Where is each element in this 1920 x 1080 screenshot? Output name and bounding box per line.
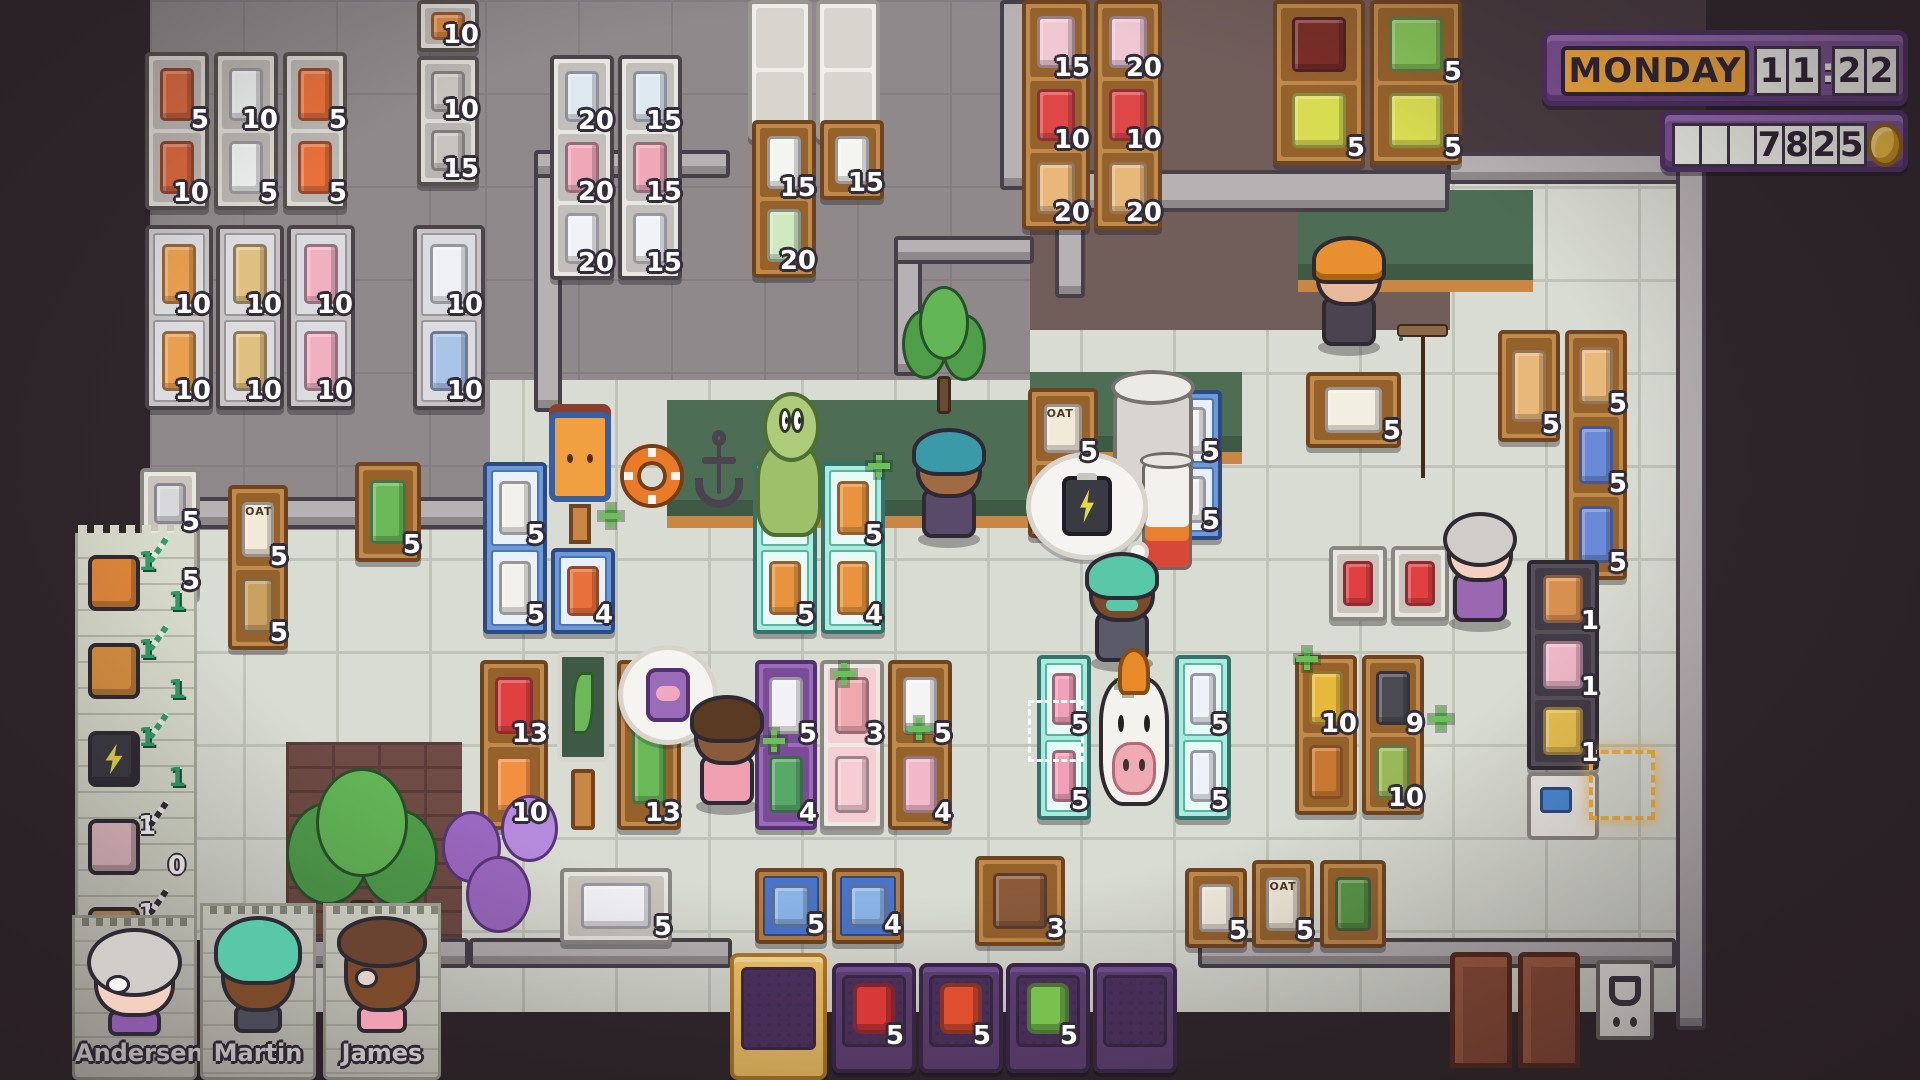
croissant-shelf-b-row: 5 bbox=[829, 470, 877, 546]
coffee-table-row: 3 bbox=[983, 864, 1057, 938]
restock-sparkle-icon bbox=[763, 730, 785, 752]
game-viewport: 5101055510101510101010101010102020201515… bbox=[0, 0, 1920, 1080]
restock-sparkle-icon bbox=[600, 505, 622, 527]
stock-count-badge: 20 bbox=[578, 248, 614, 278]
stock-count-badge: 5 bbox=[799, 719, 817, 749]
shirt-table[interactable]: 5 bbox=[1306, 372, 1401, 448]
stock-count-badge: 5 bbox=[1202, 437, 1220, 467]
bread-shelf-right-row: 5 bbox=[1506, 338, 1552, 434]
display-stand-right-row: 1 bbox=[1535, 700, 1591, 762]
hotbar-slot-4-cabbage[interactable]: 5 bbox=[1006, 963, 1090, 1073]
stock-count-badge: 5 bbox=[182, 566, 200, 596]
white-rack-b[interactable] bbox=[816, 0, 880, 140]
paper-shelf-b[interactable]: 15 bbox=[820, 120, 884, 200]
milk-bottle-stand[interactable]: 5 bbox=[560, 868, 672, 944]
stock-count-badge: 15 bbox=[780, 173, 816, 203]
stock-count-badge: 9 bbox=[1406, 709, 1424, 739]
bottle-shelf[interactable]: 54 bbox=[888, 660, 952, 830]
product-item bbox=[160, 68, 195, 120]
box-shelf-right-row: 5 bbox=[1573, 417, 1619, 492]
washer-column-a[interactable]: 202020 bbox=[550, 55, 614, 280]
stock-count-badge: 4 bbox=[884, 910, 902, 940]
cooler-flowers-row: 10 bbox=[153, 320, 205, 403]
washer-column-b-row: 15 bbox=[626, 63, 674, 130]
stock-count-badge: 20 bbox=[1126, 53, 1162, 83]
chicken-shelf-row: 5 bbox=[491, 470, 539, 546]
stock-count-badge: 5 bbox=[1296, 916, 1314, 946]
milk-fridge[interactable]: 55 bbox=[1175, 655, 1231, 820]
list-progress: 10 bbox=[136, 815, 188, 879]
left-oat-shelf[interactable]: OAT55 bbox=[228, 485, 288, 650]
product-item bbox=[1389, 93, 1444, 148]
freezer-bags[interactable]: 1015 bbox=[417, 56, 479, 186]
stock-count-badge: 5 bbox=[654, 912, 672, 942]
stock-count-badge: 10 bbox=[447, 376, 483, 406]
pantry-shelf-a-row: 10 bbox=[1030, 81, 1082, 150]
stock-count-badge: 5 bbox=[797, 600, 815, 630]
cooler-crackers[interactable]: 1010 bbox=[216, 225, 284, 410]
stock-count-badge: 10 bbox=[1054, 125, 1090, 155]
product-item bbox=[993, 873, 1046, 929]
cooler-narrow-row: 10 bbox=[421, 233, 477, 316]
display-stand-right[interactable]: 111 bbox=[1527, 560, 1599, 770]
restock-sparkle-icon bbox=[1430, 708, 1452, 730]
money-digit: 7 bbox=[1754, 123, 1784, 167]
left-oat-shelf-row: 5 bbox=[236, 570, 280, 643]
stock-count-badge: 5 bbox=[1609, 469, 1627, 499]
oat-crate-row: OAT5 bbox=[1260, 868, 1306, 940]
stock-count-badge: 10 bbox=[447, 290, 483, 320]
washer-column-a-row: 20 bbox=[558, 63, 606, 130]
hotbar-slot-3-cracker-box[interactable]: 5 bbox=[919, 963, 1003, 1073]
product-item: OAT bbox=[1266, 877, 1299, 932]
customer-teal-boy[interactable] bbox=[912, 428, 986, 548]
stock-count-badge: 4 bbox=[934, 798, 952, 828]
stock-count-badge: 10 bbox=[1126, 125, 1162, 155]
lotion-bottle-icon bbox=[88, 819, 140, 875]
lifebuoy-icon[interactable] bbox=[622, 446, 682, 506]
jam-shelf-row bbox=[1303, 737, 1349, 807]
white-rack-b-row bbox=[824, 8, 872, 68]
white-rack-a-row bbox=[756, 8, 804, 68]
martin-request-bubble bbox=[1026, 452, 1148, 560]
time-digit: 2 bbox=[1832, 46, 1867, 96]
product-item bbox=[1309, 745, 1342, 798]
sack-shelf[interactable]: 5 bbox=[1185, 868, 1247, 948]
stock-count-badge: 5 bbox=[270, 542, 288, 572]
deli-counter-b-row: 4 bbox=[840, 876, 896, 936]
cooler-crackers-row: 10 bbox=[224, 233, 276, 316]
restock-sparkle-icon bbox=[908, 718, 930, 740]
cabbage-crate[interactable] bbox=[1320, 860, 1386, 948]
pantry-shelf-b-row: 10 bbox=[1102, 81, 1154, 150]
product-item: OAT bbox=[1044, 404, 1083, 453]
towel-stand[interactable]: 3 bbox=[820, 660, 884, 830]
stock-count-badge: 5 bbox=[934, 719, 952, 749]
stock-count-badge: 5 bbox=[191, 105, 209, 135]
stock-count-badge: 15 bbox=[646, 177, 682, 207]
potted-tree-prop[interactable] bbox=[902, 286, 986, 414]
redbox-shelf-b-row bbox=[1399, 554, 1441, 613]
stock-count-badge: 4 bbox=[595, 600, 613, 630]
stock-count-badge: 10 bbox=[1388, 783, 1424, 813]
stock-count-badge: 5 bbox=[329, 105, 347, 135]
customer-builder[interactable] bbox=[1312, 236, 1386, 356]
money-digit bbox=[1672, 123, 1702, 167]
bottle-shelf-row: 4 bbox=[896, 747, 944, 822]
fish-statue-prop[interactable] bbox=[748, 392, 830, 537]
pads-shelf-row: 4 bbox=[763, 747, 809, 822]
white-rack-a[interactable] bbox=[748, 0, 812, 140]
product-label: OAT bbox=[1047, 407, 1074, 420]
snack-box-icon bbox=[88, 555, 140, 611]
product-item bbox=[1343, 561, 1373, 606]
towel-stand-row bbox=[828, 747, 876, 822]
freezer-bags-row: 15 bbox=[425, 123, 471, 178]
battery-icon bbox=[88, 731, 140, 787]
portrait-hair bbox=[214, 916, 302, 984]
stock-count-badge: 5 bbox=[1071, 786, 1089, 816]
stock-count-badge: 5 bbox=[270, 618, 288, 648]
product-item bbox=[1292, 17, 1347, 72]
freezer-snacks[interactable]: 510 bbox=[145, 52, 209, 210]
item-count-badge: 5 bbox=[973, 1021, 991, 1051]
stock-count-badge: 10 bbox=[242, 105, 278, 135]
product-item bbox=[1292, 93, 1347, 148]
stock-count-badge: 10 bbox=[512, 798, 548, 828]
cooler-narrow[interactable]: 1010 bbox=[413, 225, 485, 410]
stock-count-badge: 3 bbox=[866, 719, 884, 749]
cabbage-crate-row bbox=[1328, 868, 1378, 940]
product-item bbox=[1405, 561, 1435, 606]
coffee-table[interactable]: 3 bbox=[975, 856, 1065, 946]
planter-b[interactable]: 55 bbox=[1370, 0, 1462, 165]
pantry-shelf-b-row: 20 bbox=[1102, 8, 1154, 77]
time-digit: 1 bbox=[1754, 46, 1789, 96]
paper-shelf-a[interactable]: 1520 bbox=[752, 120, 816, 278]
deli-counter-a-row: 5 bbox=[763, 876, 819, 936]
customer-card-andersen[interactable]: Andersen bbox=[72, 915, 197, 1080]
product-item bbox=[1389, 17, 1444, 72]
clock-panel: MONDAY 11:22 bbox=[1542, 30, 1908, 106]
redbox-shelf-a[interactable] bbox=[1329, 546, 1387, 621]
product-item bbox=[581, 883, 650, 929]
stock-count-badge: 10 bbox=[175, 376, 211, 406]
wall-right-outer bbox=[1676, 152, 1706, 1030]
item-count-badge: 5 bbox=[1060, 1021, 1078, 1051]
money-digit: 5 bbox=[1837, 123, 1867, 167]
product-item bbox=[229, 141, 264, 193]
shopping-list-item-battery: 11 bbox=[84, 723, 188, 801]
stock-count-badge: 5 bbox=[1211, 710, 1229, 740]
slot-well bbox=[741, 967, 816, 1050]
cross-shelf[interactable]: 4 bbox=[551, 548, 615, 634]
planter-b-row: 5 bbox=[1378, 85, 1454, 158]
stock-count-badge: 20 bbox=[1126, 198, 1162, 228]
planter-a-row: 5 bbox=[1281, 85, 1357, 158]
product-item bbox=[835, 677, 870, 734]
left-white-fridge-row: 5 bbox=[148, 476, 192, 531]
freezer-snacks-row: 10 bbox=[153, 133, 201, 202]
deli-counter-b[interactable]: 4 bbox=[832, 868, 904, 944]
stock-count-badge: 5 bbox=[1444, 133, 1462, 163]
product-item bbox=[769, 677, 802, 734]
product-item bbox=[849, 885, 886, 928]
freezer-orange-row: 5 bbox=[291, 133, 339, 202]
list-progress: 11 bbox=[136, 639, 188, 703]
display-stand-right-row: 1 bbox=[1535, 634, 1591, 696]
pantry-shelf-a-row: 15 bbox=[1030, 8, 1082, 77]
freezer-orange-row: 5 bbox=[291, 60, 339, 129]
stock-count-badge: 5 bbox=[182, 507, 200, 537]
stock-count-badge: 3 bbox=[1047, 914, 1065, 944]
money-digit bbox=[1727, 123, 1757, 167]
freezer-top-corner[interactable]: 10 bbox=[417, 0, 479, 52]
product-icon bbox=[646, 668, 689, 722]
product-item bbox=[1543, 575, 1583, 622]
glasses-icon bbox=[355, 968, 409, 989]
deli-counter-a[interactable]: 5 bbox=[755, 868, 827, 944]
clothes-rack-prop[interactable] bbox=[1395, 318, 1450, 478]
battery-icon bbox=[1062, 476, 1111, 537]
stock-count-badge: 10 bbox=[443, 20, 479, 50]
stock-count-badge: 5 bbox=[1609, 548, 1627, 578]
chicken-shelf[interactable]: 55 bbox=[483, 462, 547, 634]
battery-shelf-row: 9 bbox=[1370, 663, 1416, 733]
product-item bbox=[1325, 387, 1382, 433]
shirt-table-row: 5 bbox=[1314, 380, 1393, 440]
shopping-list-item-snack-box: 11 bbox=[84, 547, 188, 625]
washer-column-a-row: 20 bbox=[558, 134, 606, 201]
stock-count-badge: 10 bbox=[317, 290, 353, 320]
plant-pot-shelf-row: 5 bbox=[363, 470, 413, 554]
money-display: 7825 bbox=[1675, 123, 1867, 167]
customer-card-martin[interactable]: Martin bbox=[200, 903, 316, 1080]
cooler-flowers-row: 10 bbox=[153, 233, 205, 316]
battery-shelf-row: 10 bbox=[1370, 737, 1416, 807]
stock-count-badge: 10 bbox=[246, 290, 282, 320]
stock-count-badge: 5 bbox=[1080, 437, 1098, 467]
time-digit: 2 bbox=[1864, 46, 1899, 96]
stock-count-badge: 10 bbox=[246, 376, 282, 406]
list-progress: 11 bbox=[136, 551, 188, 615]
hotbar-slot-5[interactable] bbox=[1093, 963, 1177, 1073]
washer-column-a-row: 20 bbox=[558, 205, 606, 272]
product-item bbox=[298, 141, 333, 193]
customer-andersen[interactable] bbox=[1443, 512, 1517, 632]
stock-count-badge: 5 bbox=[1609, 389, 1627, 419]
customer-name: James bbox=[326, 1039, 438, 1067]
product-item bbox=[1543, 707, 1583, 754]
slot-well bbox=[1103, 975, 1167, 1046]
product-label: OAT bbox=[1269, 880, 1296, 893]
paper-shelf-a-row: 15 bbox=[760, 128, 808, 197]
redbox-shelf-a-row bbox=[1337, 554, 1379, 613]
hotbar-slot-1[interactable] bbox=[730, 953, 827, 1080]
freezer-snacks-row: 5 bbox=[153, 60, 201, 129]
stock-count-badge: 10 bbox=[1321, 709, 1357, 739]
product-item bbox=[1579, 506, 1612, 563]
stock-count-badge: 15 bbox=[443, 154, 479, 184]
time-display: 11:22 bbox=[1757, 46, 1899, 96]
bread-shelf-right[interactable]: 5 bbox=[1498, 330, 1560, 442]
tomato-shelf-row: 13 bbox=[488, 668, 540, 743]
stock-count-badge: 15 bbox=[646, 248, 682, 278]
customer-name: Andersen bbox=[75, 1039, 194, 1067]
stock-count-badge: 15 bbox=[848, 168, 884, 198]
planter-a-row bbox=[1281, 8, 1357, 81]
stock-count-badge: 5 bbox=[1211, 786, 1229, 816]
stock-count-badge: 5 bbox=[1071, 710, 1089, 740]
money-digit bbox=[1699, 123, 1729, 167]
product-label: OAT bbox=[245, 505, 272, 518]
stock-count-badge: 5 bbox=[527, 600, 545, 630]
hotbar-slot-2-apple[interactable]: 5 bbox=[832, 963, 916, 1073]
stock-count-badge: 15 bbox=[1054, 53, 1090, 83]
freezer-top-corner-row: 10 bbox=[425, 8, 471, 44]
freezer-orange[interactable]: 55 bbox=[283, 52, 347, 210]
stock-count-badge: 4 bbox=[865, 600, 883, 630]
cookie-icon bbox=[88, 643, 140, 699]
product-item bbox=[1543, 641, 1583, 688]
product-item bbox=[1579, 426, 1612, 483]
product-item bbox=[298, 68, 333, 120]
stock-count-badge: 5 bbox=[329, 178, 347, 208]
milk-fridge-row: 5 bbox=[1183, 663, 1223, 736]
washer-column-b-row: 15 bbox=[626, 205, 674, 272]
money-digit: 2 bbox=[1809, 123, 1839, 167]
cooler-flowers[interactable]: 1010 bbox=[145, 225, 213, 410]
stock-count-badge: 5 bbox=[1229, 916, 1247, 946]
box-shelf-right-row: 5 bbox=[1573, 338, 1619, 413]
restock-sparkle-icon bbox=[833, 663, 855, 685]
pantry-shelf-b[interactable]: 201020 bbox=[1094, 0, 1162, 230]
product-item bbox=[835, 756, 870, 813]
stock-count-badge: 15 bbox=[646, 106, 682, 136]
stock-count-badge: 5 bbox=[527, 520, 545, 550]
wall-backroom-bottom bbox=[150, 497, 490, 529]
freezer-dispensers-row: 5 bbox=[222, 133, 270, 202]
stock-count-badge: 13 bbox=[645, 798, 681, 828]
freezer-dispensers-row: 10 bbox=[222, 60, 270, 129]
wall-washer-right-h bbox=[894, 236, 1034, 264]
stock-count-badge: 5 bbox=[260, 178, 278, 208]
washer-column-b[interactable]: 151515 bbox=[618, 55, 682, 280]
planter-b-row: 5 bbox=[1378, 8, 1454, 81]
jam-shelf-row: 10 bbox=[1303, 663, 1349, 733]
pantry-shelf-a[interactable]: 151020 bbox=[1022, 0, 1090, 230]
cooler-pink-row: 10 bbox=[295, 320, 347, 403]
croissant-shelf-b[interactable]: 54 bbox=[821, 462, 885, 634]
plant-pot-shelf[interactable]: 5 bbox=[355, 462, 421, 562]
stock-count-badge: 20 bbox=[780, 246, 816, 276]
product-item bbox=[1512, 350, 1545, 423]
stock-count-badge: 4 bbox=[799, 798, 817, 828]
product-item bbox=[1579, 347, 1612, 404]
stock-count-badge: 10 bbox=[175, 290, 211, 320]
oat-crate[interactable]: OAT5 bbox=[1252, 860, 1314, 948]
croissant-shelf-b-row: 4 bbox=[829, 550, 877, 626]
stock-count-badge: 1 bbox=[1581, 738, 1599, 768]
stock-count-badge: 10 bbox=[443, 95, 479, 125]
shopping-list-item-cookie: 11 bbox=[84, 635, 188, 713]
money-panel: 7825 bbox=[1660, 110, 1908, 172]
stock-count-badge: 13 bbox=[512, 719, 548, 749]
cooler-crackers-row: 10 bbox=[224, 320, 276, 403]
oat-shelf-row: OAT5 bbox=[1036, 396, 1090, 461]
stock-count-badge: 5 bbox=[1202, 506, 1220, 536]
coin-icon bbox=[1867, 123, 1903, 167]
planter-a[interactable]: 5 bbox=[1273, 0, 1365, 165]
pantry-shelf-a-row: 20 bbox=[1030, 153, 1082, 222]
stock-count-badge: 1 bbox=[1581, 672, 1599, 702]
box-shelf-right[interactable]: 555 bbox=[1565, 330, 1627, 580]
day-label: MONDAY bbox=[1561, 46, 1749, 96]
stock-count-badge: 5 bbox=[1542, 410, 1560, 440]
stock-count-badge: 5 bbox=[1347, 133, 1365, 163]
stock-count-badge: 5 bbox=[807, 910, 825, 940]
left-oat-shelf-row: OAT5 bbox=[236, 493, 280, 566]
product-item bbox=[1199, 884, 1232, 933]
restock-sparkle-icon bbox=[868, 455, 890, 477]
stock-count-badge: 20 bbox=[578, 106, 614, 136]
list-progress: 11 bbox=[136, 727, 188, 791]
plant-sign-stand-icon[interactable] bbox=[552, 652, 614, 830]
cooler-narrow-row: 10 bbox=[421, 320, 477, 403]
glasses-icon bbox=[106, 975, 163, 994]
product-item bbox=[1376, 671, 1409, 724]
product-item bbox=[370, 480, 406, 544]
stock-count-badge: 20 bbox=[578, 177, 614, 207]
player[interactable] bbox=[690, 695, 764, 815]
freezer-dispensers[interactable]: 105 bbox=[214, 52, 278, 210]
display-stand-right-row: 1 bbox=[1535, 568, 1591, 630]
cooler-pink[interactable]: 1010 bbox=[287, 225, 355, 410]
exit-doors-prop[interactable] bbox=[1450, 952, 1580, 1068]
basket-sign-icon[interactable] bbox=[1596, 960, 1654, 1040]
cow-mascot-prop[interactable] bbox=[1094, 648, 1174, 828]
pantry-shelf-b-row: 20 bbox=[1102, 153, 1154, 222]
chicken-shelf-row: 5 bbox=[491, 550, 539, 626]
stock-count-badge: 1 bbox=[1581, 606, 1599, 636]
product-item bbox=[903, 756, 938, 813]
sack-shelf-row: 5 bbox=[1193, 876, 1239, 940]
cross-shelf-row: 4 bbox=[559, 556, 607, 626]
stock-count-badge: 5 bbox=[1444, 57, 1462, 87]
money-digit: 8 bbox=[1782, 123, 1812, 167]
stock-count-badge: 10 bbox=[317, 376, 353, 406]
stock-count-badge: 20 bbox=[1054, 198, 1090, 228]
washer-column-b-row: 15 bbox=[626, 134, 674, 201]
freezer-bags-row: 10 bbox=[425, 64, 471, 119]
restock-sparkle-icon bbox=[1296, 648, 1318, 670]
stock-count-badge: 10 bbox=[173, 178, 209, 208]
cooler-pink-row: 10 bbox=[295, 233, 347, 316]
battery-shelf[interactable]: 910 bbox=[1362, 655, 1424, 815]
portrait-hair bbox=[337, 916, 427, 967]
paper-shelf-b-row: 15 bbox=[828, 128, 876, 192]
croissant-shelf-a-row: 5 bbox=[761, 550, 809, 626]
milk-fridge-row: 5 bbox=[1183, 740, 1223, 813]
stock-count-badge: 5 bbox=[865, 520, 883, 550]
customer-card-james[interactable]: James bbox=[323, 903, 441, 1080]
time-digit: 1 bbox=[1786, 46, 1821, 96]
redbox-shelf-b[interactable] bbox=[1391, 546, 1449, 621]
milk-bottle-stand-row: 5 bbox=[568, 876, 664, 936]
product-item bbox=[772, 885, 809, 928]
jam-shelf[interactable]: 10 bbox=[1295, 655, 1357, 815]
anchor-icon[interactable] bbox=[688, 430, 750, 508]
